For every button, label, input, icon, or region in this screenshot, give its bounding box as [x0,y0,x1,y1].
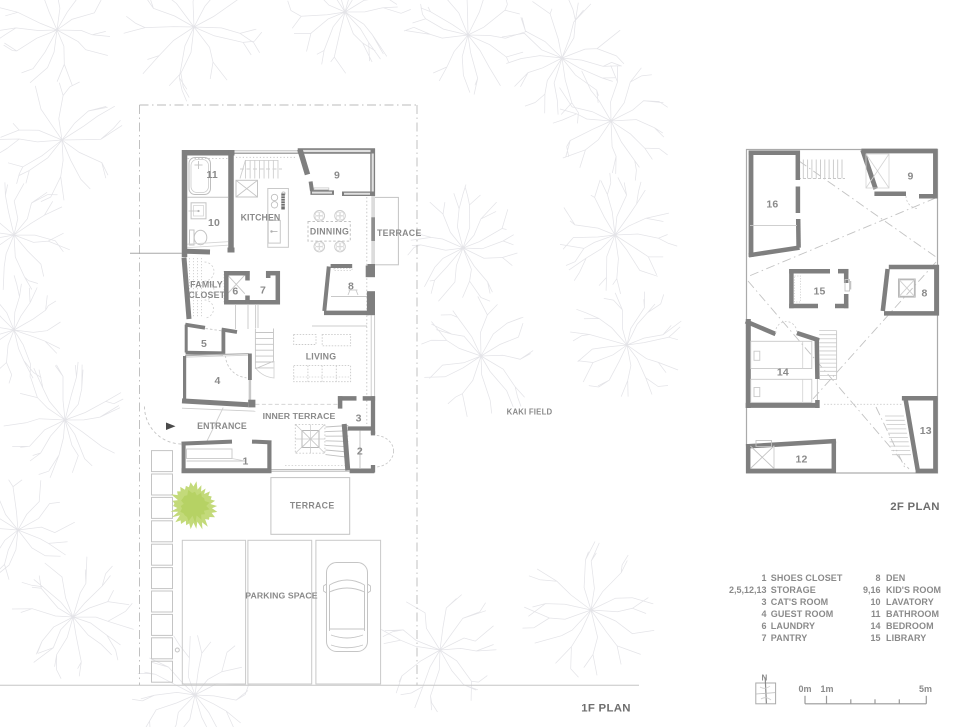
svg-text:DINNING: DINNING [310,227,349,237]
svg-text:7: 7 [260,285,266,297]
svg-text:8: 8 [348,281,354,293]
svg-text:8: 8 [875,573,880,583]
svg-text:14: 14 [777,366,789,378]
svg-text:6: 6 [232,286,238,298]
svg-text:INNER TERRACE: INNER TERRACE [263,411,336,421]
svg-text:10: 10 [208,217,220,229]
svg-text:0m: 0m [798,684,811,694]
svg-text:9: 9 [907,170,913,182]
svg-text:5: 5 [201,338,207,350]
svg-text:N: N [761,674,767,683]
svg-text:9: 9 [334,170,340,182]
svg-text:10: 10 [870,597,880,607]
svg-text:STORAGE: STORAGE [771,585,816,595]
svg-text:3: 3 [761,597,766,607]
svg-text:LIVING: LIVING [306,352,337,362]
svg-text:KID'S ROOM: KID'S ROOM [886,585,941,595]
svg-text:7: 7 [761,633,766,643]
svg-text:LAVATORY: LAVATORY [886,597,934,607]
svg-text:KAKI FIELD: KAKI FIELD [507,408,553,417]
svg-text:BATHROOM: BATHROOM [886,609,939,619]
svg-text:LIBRARY: LIBRARY [886,633,926,643]
svg-text:4: 4 [761,609,766,619]
svg-text:CAT'S ROOM: CAT'S ROOM [771,597,828,607]
svg-text:16: 16 [766,199,778,211]
svg-text:KITCHEN: KITCHEN [241,212,281,222]
svg-text:13: 13 [920,425,932,437]
svg-text:1: 1 [761,573,766,583]
svg-text:6: 6 [761,621,766,631]
svg-text:1F PLAN: 1F PLAN [581,703,631,715]
svg-text:1m: 1m [820,684,833,694]
svg-text:DEN: DEN [886,573,905,583]
svg-text:5m: 5m [919,684,932,694]
svg-text:1: 1 [242,455,248,467]
svg-text:2: 2 [357,446,363,458]
svg-text:ENTRANCE: ENTRANCE [197,421,247,431]
svg-text:12: 12 [795,453,807,465]
svg-text:CLOSET: CLOSET [188,290,225,300]
svg-text:TERRACE: TERRACE [290,501,335,511]
svg-text:SHOES CLOSET: SHOES CLOSET [771,573,843,583]
svg-text:9,16: 9,16 [863,585,881,595]
svg-text:BEDROOM: BEDROOM [886,621,934,631]
svg-text:4: 4 [214,375,220,387]
svg-text:8: 8 [921,287,927,299]
svg-text:11: 11 [206,169,218,181]
svg-text:2,5,12,13: 2,5,12,13 [729,585,767,595]
svg-text:PANTRY: PANTRY [771,633,808,643]
svg-text:TERRACE: TERRACE [377,228,422,238]
svg-text:15: 15 [813,285,825,297]
svg-text:14: 14 [870,621,880,631]
svg-text:15: 15 [870,633,880,643]
svg-text:3: 3 [356,413,362,425]
svg-text:FAMILY: FAMILY [190,279,223,289]
svg-text:2F PLAN: 2F PLAN [890,501,940,513]
svg-text:11: 11 [871,609,881,619]
svg-text:GUEST ROOM: GUEST ROOM [771,609,834,619]
svg-text:LAUNDRY: LAUNDRY [771,621,815,631]
svg-text:PARKING SPACE: PARKING SPACE [245,591,318,601]
